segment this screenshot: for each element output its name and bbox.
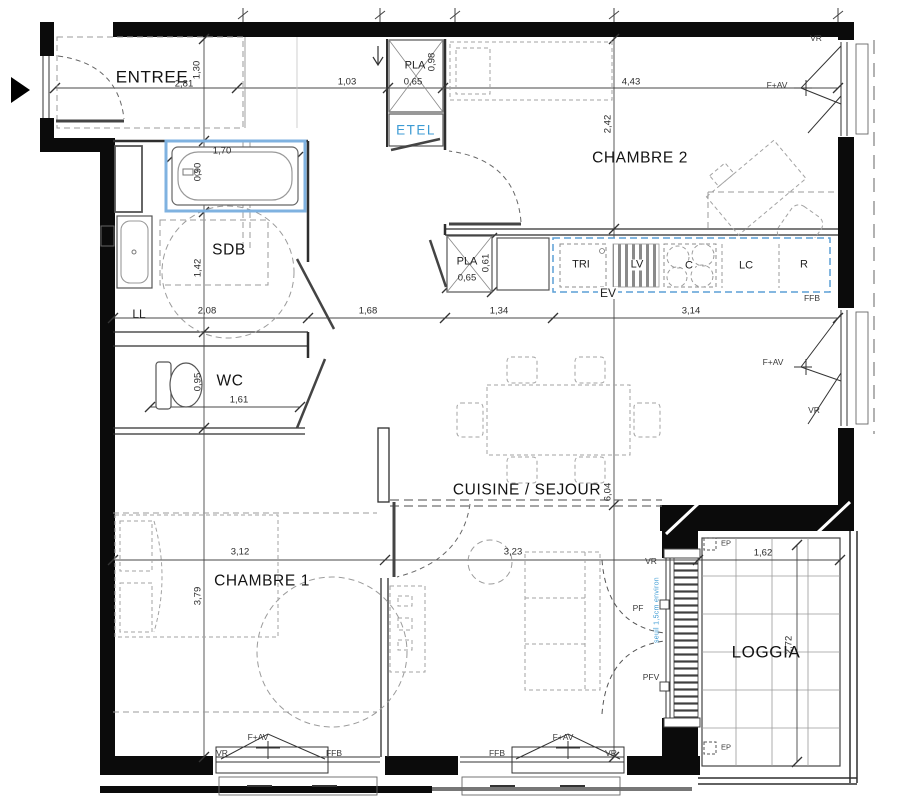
dim-2-81: 2,81 — [175, 79, 194, 89]
kitchen-label-lv: LV — [629, 260, 646, 271]
dim-0-90: 0,90 — [193, 163, 203, 182]
window-label-vr-chambre1: VR — [216, 749, 228, 758]
dim-1-42: 1,42 — [193, 259, 203, 278]
axis-ticks — [238, 8, 843, 22]
dim-0-65-pla-kitchen: 0,65 — [458, 273, 477, 283]
dim-0-61: 0,61 — [481, 254, 491, 273]
kitchen-label-ev: EV — [598, 287, 618, 299]
window-label-fav-chambre1: F+AV — [248, 733, 269, 742]
dim-2-72: 2,72 — [784, 636, 794, 655]
closet-label-etel: ETEL — [396, 123, 436, 137]
dim-1-61: 1,61 — [230, 395, 249, 405]
window-label-pfv-loggia: PFV — [643, 673, 660, 682]
room-label-sdb: SDB — [212, 242, 246, 258]
window-label-pf-loggia: PF — [633, 604, 644, 613]
dim-0-65-pla-top: 0,65 — [404, 77, 423, 87]
dim-3-14: 3,14 — [682, 306, 701, 316]
kitchen-label-lc: LC — [739, 261, 753, 272]
dim-1-62: 1,62 — [754, 548, 773, 558]
dim-2-08: 2,08 — [198, 306, 217, 316]
window-label-fav-chambre2: F+AV — [767, 81, 788, 90]
window-label-fav-sejour: F+AV — [763, 358, 784, 367]
closet-label-pla-top: PLA — [405, 61, 426, 72]
windows — [216, 42, 868, 795]
dim-3-23: 3,23 — [504, 547, 523, 557]
room-label-chambre1: CHAMBRE 1 — [214, 573, 310, 589]
dim-0-98: 0,98 — [427, 53, 437, 72]
annotation-seuil: seuil 1,5cm environ — [654, 577, 661, 643]
room-label-cuisine-sejour: CUISINE / SEJOUR — [453, 482, 601, 498]
dimension-lines — [55, 37, 840, 762]
dim-3-12: 3,12 — [231, 547, 250, 557]
dim-1-30: 1,30 — [192, 61, 202, 80]
dim-1-68: 1,68 — [359, 306, 378, 316]
dim-3-79: 3,79 — [193, 587, 203, 606]
kitchen-label-c: C — [683, 261, 695, 272]
window-label-vr-sejour-sud: VR — [605, 749, 617, 758]
dim-1-34: 1,34 — [490, 306, 509, 316]
floorplan-page: ENTREE CHAMBRE 2 SDB WC CUISINE / SEJOUR… — [0, 0, 921, 800]
dim-4-43: 4,43 — [622, 77, 641, 87]
dim-6-04: 6,04 — [603, 483, 613, 502]
label-ll: LL — [132, 308, 145, 320]
closet-label-pla-kitchen: PLA — [457, 257, 478, 268]
room-label-wc: WC — [216, 373, 243, 389]
window-label-fav-sejour-sud: F+AV — [553, 733, 574, 742]
window-label-ffb-chambre1: FFB — [326, 749, 342, 758]
dim-0-95: 0,95 — [193, 373, 203, 392]
window-label-ffb-sejour: FFB — [804, 294, 820, 303]
kitchen-label-tri: TRI — [572, 260, 590, 271]
label-ep-top: EP — [721, 539, 731, 547]
loggia-sliding-door — [660, 549, 700, 727]
floorplan-linework — [0, 0, 921, 800]
dim-1-70: 1,70 — [213, 146, 232, 156]
furniture — [115, 42, 826, 690]
dim-1-03: 1,03 — [338, 77, 357, 87]
window-label-ffb-sejour-sud: FFB — [489, 749, 505, 758]
window-label-vr-chambre2: VR — [810, 34, 822, 43]
room-label-chambre2: CHAMBRE 2 — [592, 150, 688, 166]
dim-2-42: 2,42 — [603, 115, 613, 134]
label-ep-bottom: EP — [721, 743, 731, 751]
kitchen-label-r: R — [800, 260, 808, 271]
entrance-arrow-icon — [11, 77, 30, 103]
window-label-vr-sejour: VR — [808, 406, 820, 415]
window-label-vr-loggia: VR — [645, 557, 657, 566]
bathtub — [166, 141, 305, 211]
ep-marks — [704, 538, 716, 754]
